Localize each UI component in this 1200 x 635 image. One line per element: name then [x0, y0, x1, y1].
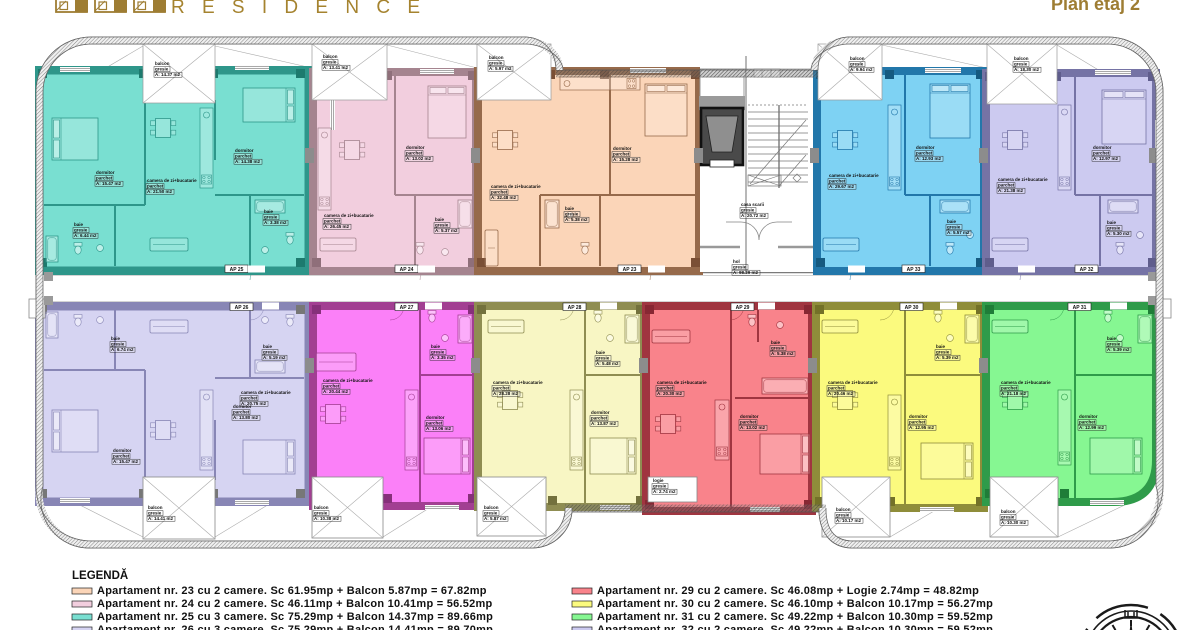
svg-text:AP 25: AP 25	[230, 267, 244, 273]
svg-text:camera de zi+bucatarie: camera de zi+bucatarie	[493, 380, 543, 385]
svg-text:baie: baie	[264, 209, 274, 214]
svg-text:parchet: parchet	[740, 420, 757, 425]
svg-text:balcon: balcon	[323, 54, 338, 59]
svg-text:parchet: parchet	[591, 416, 608, 421]
svg-text:parchet: parchet	[235, 154, 252, 159]
svg-text:parchet: parchet	[241, 396, 258, 401]
svg-text:gresie: gresie	[148, 511, 162, 516]
svg-text:camera de zi+bucatarie: camera de zi+bucatarie	[147, 178, 197, 183]
svg-text:balcon: balcon	[1001, 509, 1016, 514]
svg-text:balcon: balcon	[484, 505, 499, 510]
svg-text:A: 13.87 m2: A: 13.87 m2	[591, 421, 617, 426]
svg-text:dormitor: dormitor	[235, 148, 254, 153]
svg-text:A: 13.02 m2: A: 13.02 m2	[406, 156, 432, 161]
svg-text:parchet: parchet	[613, 152, 630, 157]
svg-text:parchet: parchet	[493, 386, 510, 391]
svg-text:baie: baie	[1107, 220, 1117, 225]
svg-text:A: 3.35 m2: A: 3.35 m2	[431, 355, 454, 360]
svg-text:AP 33: AP 33	[907, 267, 921, 273]
svg-text:A: 18.30 m2: A: 18.30 m2	[1014, 67, 1040, 72]
svg-text:gresie: gresie	[489, 61, 503, 66]
svg-text:A: 12.97 m2: A: 12.97 m2	[1093, 156, 1119, 161]
svg-text:baie: baie	[263, 344, 273, 349]
svg-text:camera de zi+bucatarie: camera de zi+bucatarie	[491, 184, 541, 189]
svg-text:parchet: parchet	[998, 183, 1015, 188]
svg-text:A: 15.47 m2: A: 15.47 m2	[96, 181, 122, 186]
svg-text:balcon: balcon	[148, 505, 163, 510]
svg-text:A: 21.18 m2: A: 21.18 m2	[1001, 391, 1027, 396]
svg-text:parchet: parchet	[96, 176, 113, 181]
svg-text:A: 28.28 m2: A: 28.28 m2	[493, 391, 519, 396]
svg-text:A: 9.94 m2: A: 9.94 m2	[850, 67, 873, 72]
svg-text:A: 15.47 m2: A: 15.47 m2	[113, 459, 139, 464]
svg-text:Apartament nr. 31 cu 2 camere.: Apartament nr. 31 cu 2 camere. Sc 49.22m…	[597, 611, 993, 623]
svg-text:dormitor: dormitor	[96, 170, 115, 175]
svg-text:gresie: gresie	[653, 484, 667, 489]
svg-text:gresie: gresie	[936, 350, 950, 355]
svg-text:Apartament nr. 24 cu 2 camere.: Apartament nr. 24 cu 2 camere. Sc 46.11m…	[97, 598, 493, 610]
svg-text:A: 5.38 m2: A: 5.38 m2	[771, 351, 794, 356]
svg-text:A: 13.02 m2: A: 13.02 m2	[740, 425, 766, 430]
svg-text:parchet: parchet	[113, 454, 130, 459]
svg-text:gresie: gresie	[850, 62, 864, 67]
svg-text:camera de zi+bucatarie: camera de zi+bucatarie	[323, 378, 373, 383]
svg-text:A: 10.17 m2: A: 10.17 m2	[836, 518, 862, 523]
svg-text:gresie: gresie	[264, 215, 278, 220]
svg-text:baie: baie	[435, 217, 445, 222]
svg-text:parchet: parchet	[406, 151, 423, 156]
svg-text:logie: logie	[653, 478, 664, 483]
svg-text:baie: baie	[596, 350, 606, 355]
svg-text:dormitor: dormitor	[591, 410, 610, 415]
svg-text:gresie: gresie	[565, 212, 579, 217]
svg-text:A: 98.29 m2: A: 98.29 m2	[733, 270, 759, 275]
svg-text:dormitor: dormitor	[740, 414, 759, 419]
svg-text:A: 12.99 m2: A: 12.99 m2	[1079, 425, 1105, 430]
svg-text:A: 5.87 m2: A: 5.87 m2	[484, 516, 507, 521]
svg-text:parchet: parchet	[147, 184, 164, 189]
svg-text:A: 6.44 m2: A: 6.44 m2	[74, 233, 97, 238]
svg-text:baie: baie	[771, 340, 781, 345]
svg-text:gresie: gresie	[741, 208, 755, 213]
svg-text:dormitor: dormitor	[426, 415, 445, 420]
svg-text:A: 21.50 m2: A: 21.50 m2	[147, 189, 173, 194]
svg-text:camera de zi+bucatarie: camera de zi+bucatarie	[241, 390, 291, 395]
svg-text:Apartament nr. 30 cu 2 camere.: Apartament nr. 30 cu 2 camere. Sc 46.10m…	[597, 598, 993, 610]
svg-text:A: 5.39 m2: A: 5.39 m2	[936, 355, 959, 360]
svg-text:parchet: parchet	[324, 219, 341, 224]
svg-text:balcon: balcon	[836, 507, 851, 512]
svg-text:parchet: parchet	[323, 384, 340, 389]
svg-text:A: 6.74 m2: A: 6.74 m2	[111, 347, 134, 352]
svg-text:parchet: parchet	[426, 421, 443, 426]
svg-text:A: 2.74 m2: A: 2.74 m2	[653, 489, 676, 494]
svg-text:balcon: balcon	[489, 55, 504, 60]
svg-text:parchet: parchet	[657, 386, 674, 391]
svg-text:A: 5.37 m2: A: 5.37 m2	[435, 228, 458, 233]
svg-text:RESIDENCE: RESIDENCE	[171, 0, 434, 18]
svg-text:gresie: gresie	[1107, 226, 1121, 231]
svg-text:dormitor: dormitor	[1093, 145, 1112, 150]
svg-text:gresie: gresie	[74, 228, 88, 233]
svg-text:A: 5.97 m2: A: 5.97 m2	[489, 66, 512, 71]
svg-text:gresie: gresie	[947, 225, 961, 230]
svg-text:baie: baie	[1107, 336, 1117, 341]
svg-text:A: 26.45 m2: A: 26.45 m2	[324, 224, 350, 229]
svg-text:hol: hol	[733, 259, 740, 264]
svg-text:gresie: gresie	[314, 511, 328, 516]
svg-text:parchet: parchet	[909, 420, 926, 425]
svg-text:gresie: gresie	[733, 265, 747, 270]
svg-text:A: 10.38 m2: A: 10.38 m2	[314, 516, 340, 521]
svg-text:LEGENDĂ: LEGENDĂ	[72, 569, 128, 582]
svg-text:A: 5.38 m2: A: 5.38 m2	[565, 217, 588, 222]
svg-text:gresie: gresie	[596, 356, 610, 361]
svg-text:gresie: gresie	[155, 67, 169, 72]
svg-text:Apartament nr. 26 cu 3 camere.: Apartament nr. 26 cu 3 camere. Sc 75.29m…	[97, 624, 493, 630]
svg-text:A: 5.39 m2: A: 5.39 m2	[1107, 347, 1130, 352]
svg-text:gresie: gresie	[1001, 515, 1015, 520]
svg-text:AP 24: AP 24	[400, 267, 414, 273]
svg-text:Apartament nr. 23 cu 2 camere.: Apartament nr. 23 cu 2 camere. Sc 61.95m…	[97, 585, 487, 597]
svg-text:Apartament nr. 25 cu 3 camere.: Apartament nr. 25 cu 3 camere. Sc 75.29m…	[97, 611, 493, 623]
svg-text:A: 13.41 m2: A: 13.41 m2	[323, 65, 349, 70]
svg-text:camera de zi+bucatarie: camera de zi+bucatarie	[657, 380, 707, 385]
svg-text:parchet: parchet	[1093, 151, 1110, 156]
svg-text:casa scarii: casa scarii	[741, 202, 764, 207]
svg-text:A: 21.38 m2: A: 21.38 m2	[998, 188, 1024, 193]
svg-text:gresie: gresie	[1107, 342, 1121, 347]
svg-text:A: 20.46 m2: A: 20.46 m2	[828, 391, 854, 396]
svg-text:baie: baie	[947, 219, 957, 224]
svg-text:dormitor: dormitor	[1079, 414, 1098, 419]
svg-text:baie: baie	[936, 344, 946, 349]
svg-text:camera de zi+bucatarie: camera de zi+bucatarie	[828, 380, 878, 385]
svg-text:AP 32: AP 32	[1080, 267, 1094, 273]
svg-text:dormitor: dormitor	[113, 448, 132, 453]
svg-text:camera de zi+bucatarie: camera de zi+bucatarie	[829, 173, 879, 178]
svg-text:AP 28: AP 28	[568, 305, 582, 311]
svg-text:dormitor: dormitor	[406, 145, 425, 150]
svg-text:balcon: balcon	[155, 61, 170, 66]
svg-text:AP 30: AP 30	[905, 305, 919, 311]
svg-text:A: 5.48 m2: A: 5.48 m2	[596, 361, 619, 366]
svg-text:A: 15.28 m2: A: 15.28 m2	[613, 157, 639, 162]
svg-text:A: 3.38 m2: A: 3.38 m2	[264, 220, 287, 225]
svg-text:parchet: parchet	[828, 386, 845, 391]
svg-text:baie: baie	[565, 206, 575, 211]
svg-text:dormitor: dormitor	[233, 404, 252, 409]
svg-text:A: 14.38 m2: A: 14.38 m2	[235, 159, 261, 164]
svg-text:baie: baie	[74, 222, 84, 227]
svg-text:A: 5.57 m2: A: 5.57 m2	[947, 230, 970, 235]
svg-text:balcon: balcon	[850, 56, 865, 61]
svg-text:camera de zi+bucatarie: camera de zi+bucatarie	[998, 177, 1048, 182]
svg-text:A: 13.80 m2: A: 13.80 m2	[233, 415, 259, 420]
svg-text:Apartament nr. 32 cu 2 camere.: Apartament nr. 32 cu 2 camere. Sc 49.22m…	[597, 624, 993, 630]
svg-text:parchet: parchet	[1079, 420, 1096, 425]
svg-text:gresie: gresie	[836, 513, 850, 518]
svg-text:dormitor: dormitor	[916, 145, 935, 150]
svg-text:A: 29.67 m2: A: 29.67 m2	[829, 184, 855, 189]
svg-text:A: 13.06 m2: A: 13.06 m2	[426, 426, 452, 431]
svg-text:A: 5.30 m2: A: 5.30 m2	[1107, 231, 1130, 236]
svg-text:gresie: gresie	[263, 350, 277, 355]
svg-text:AP 27: AP 27	[400, 305, 414, 311]
svg-text:A: 10.30 m2: A: 10.30 m2	[1001, 520, 1027, 525]
svg-text:AP 26: AP 26	[235, 305, 249, 311]
svg-text:A: 32.48 m2: A: 32.48 m2	[491, 195, 517, 200]
svg-text:dormitor: dormitor	[909, 414, 928, 419]
svg-text:A: 14.41 m2: A: 14.41 m2	[148, 516, 174, 521]
svg-text:gresie: gresie	[323, 60, 337, 65]
svg-text:A: 20.44 m2: A: 20.44 m2	[323, 389, 349, 394]
svg-text:gresie: gresie	[1014, 62, 1028, 67]
svg-text:A: 20.72 m2: A: 20.72 m2	[741, 213, 767, 218]
svg-text:Plan etaj 2: Plan etaj 2	[1051, 0, 1140, 14]
svg-text:parchet: parchet	[916, 151, 933, 156]
svg-text:A: 14.37 m2: A: 14.37 m2	[155, 72, 181, 77]
svg-text:gresie: gresie	[435, 223, 449, 228]
svg-text:parchet: parchet	[829, 179, 846, 184]
svg-text:gresie: gresie	[431, 350, 445, 355]
svg-text:AP 29: AP 29	[736, 305, 750, 311]
svg-text:A: 12.95 m2: A: 12.95 m2	[909, 425, 935, 430]
svg-text:camera de zi+bucatarie: camera de zi+bucatarie	[324, 213, 374, 218]
svg-text:baie: baie	[431, 344, 441, 349]
svg-text:A: 5.19 m2: A: 5.19 m2	[263, 355, 286, 360]
svg-text:Apartament nr. 29 cu 2 camere.: Apartament nr. 29 cu 2 camere. Sc 46.08m…	[597, 585, 979, 597]
svg-text:gresie: gresie	[771, 346, 785, 351]
svg-text:gresie: gresie	[484, 511, 498, 516]
svg-text:dormitor: dormitor	[613, 146, 632, 151]
svg-text:camera de zi+bucatarie: camera de zi+bucatarie	[1001, 380, 1051, 385]
svg-text:parchet: parchet	[233, 410, 250, 415]
svg-text:AP 31: AP 31	[1073, 305, 1087, 311]
svg-text:parchet: parchet	[491, 190, 508, 195]
svg-text:balcon: balcon	[1014, 56, 1029, 61]
svg-text:A: 20.30 m2: A: 20.30 m2	[657, 391, 683, 396]
svg-text:baie: baie	[111, 336, 121, 341]
svg-text:balcon: balcon	[314, 505, 329, 510]
svg-text:A: 12.93 m2: A: 12.93 m2	[916, 156, 942, 161]
svg-text:parchet: parchet	[1001, 386, 1018, 391]
svg-text:gresie: gresie	[111, 342, 125, 347]
svg-text:AP 23: AP 23	[623, 267, 637, 273]
